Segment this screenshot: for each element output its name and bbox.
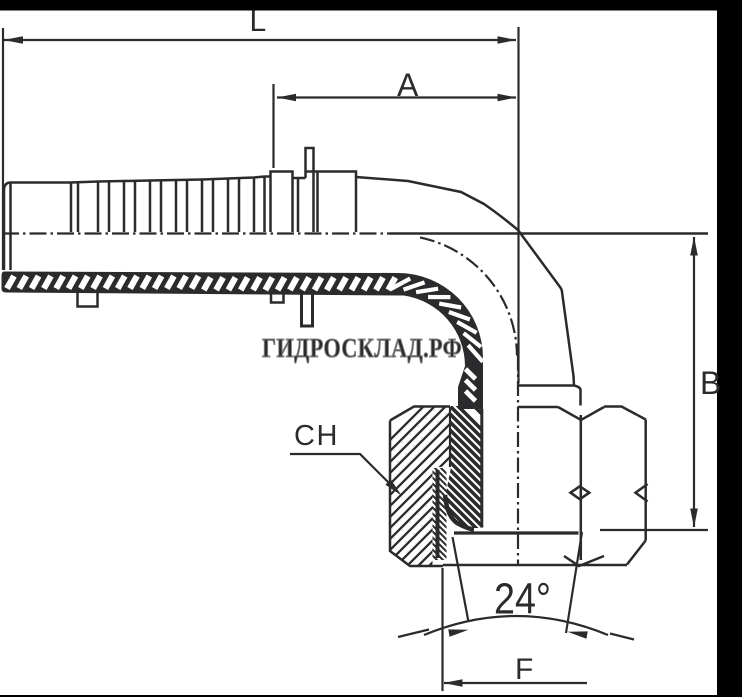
- svg-text:B: B: [700, 365, 721, 401]
- svg-text:CH: CH: [294, 420, 339, 452]
- svg-text:A: A: [397, 67, 419, 103]
- svg-text:F: F: [515, 653, 533, 686]
- svg-text:ГИДРОСКЛАД.РФ: ГИДРОСКЛАД.РФ: [262, 333, 462, 363]
- svg-text:24°: 24°: [494, 575, 551, 624]
- svg-text:L: L: [250, 5, 267, 38]
